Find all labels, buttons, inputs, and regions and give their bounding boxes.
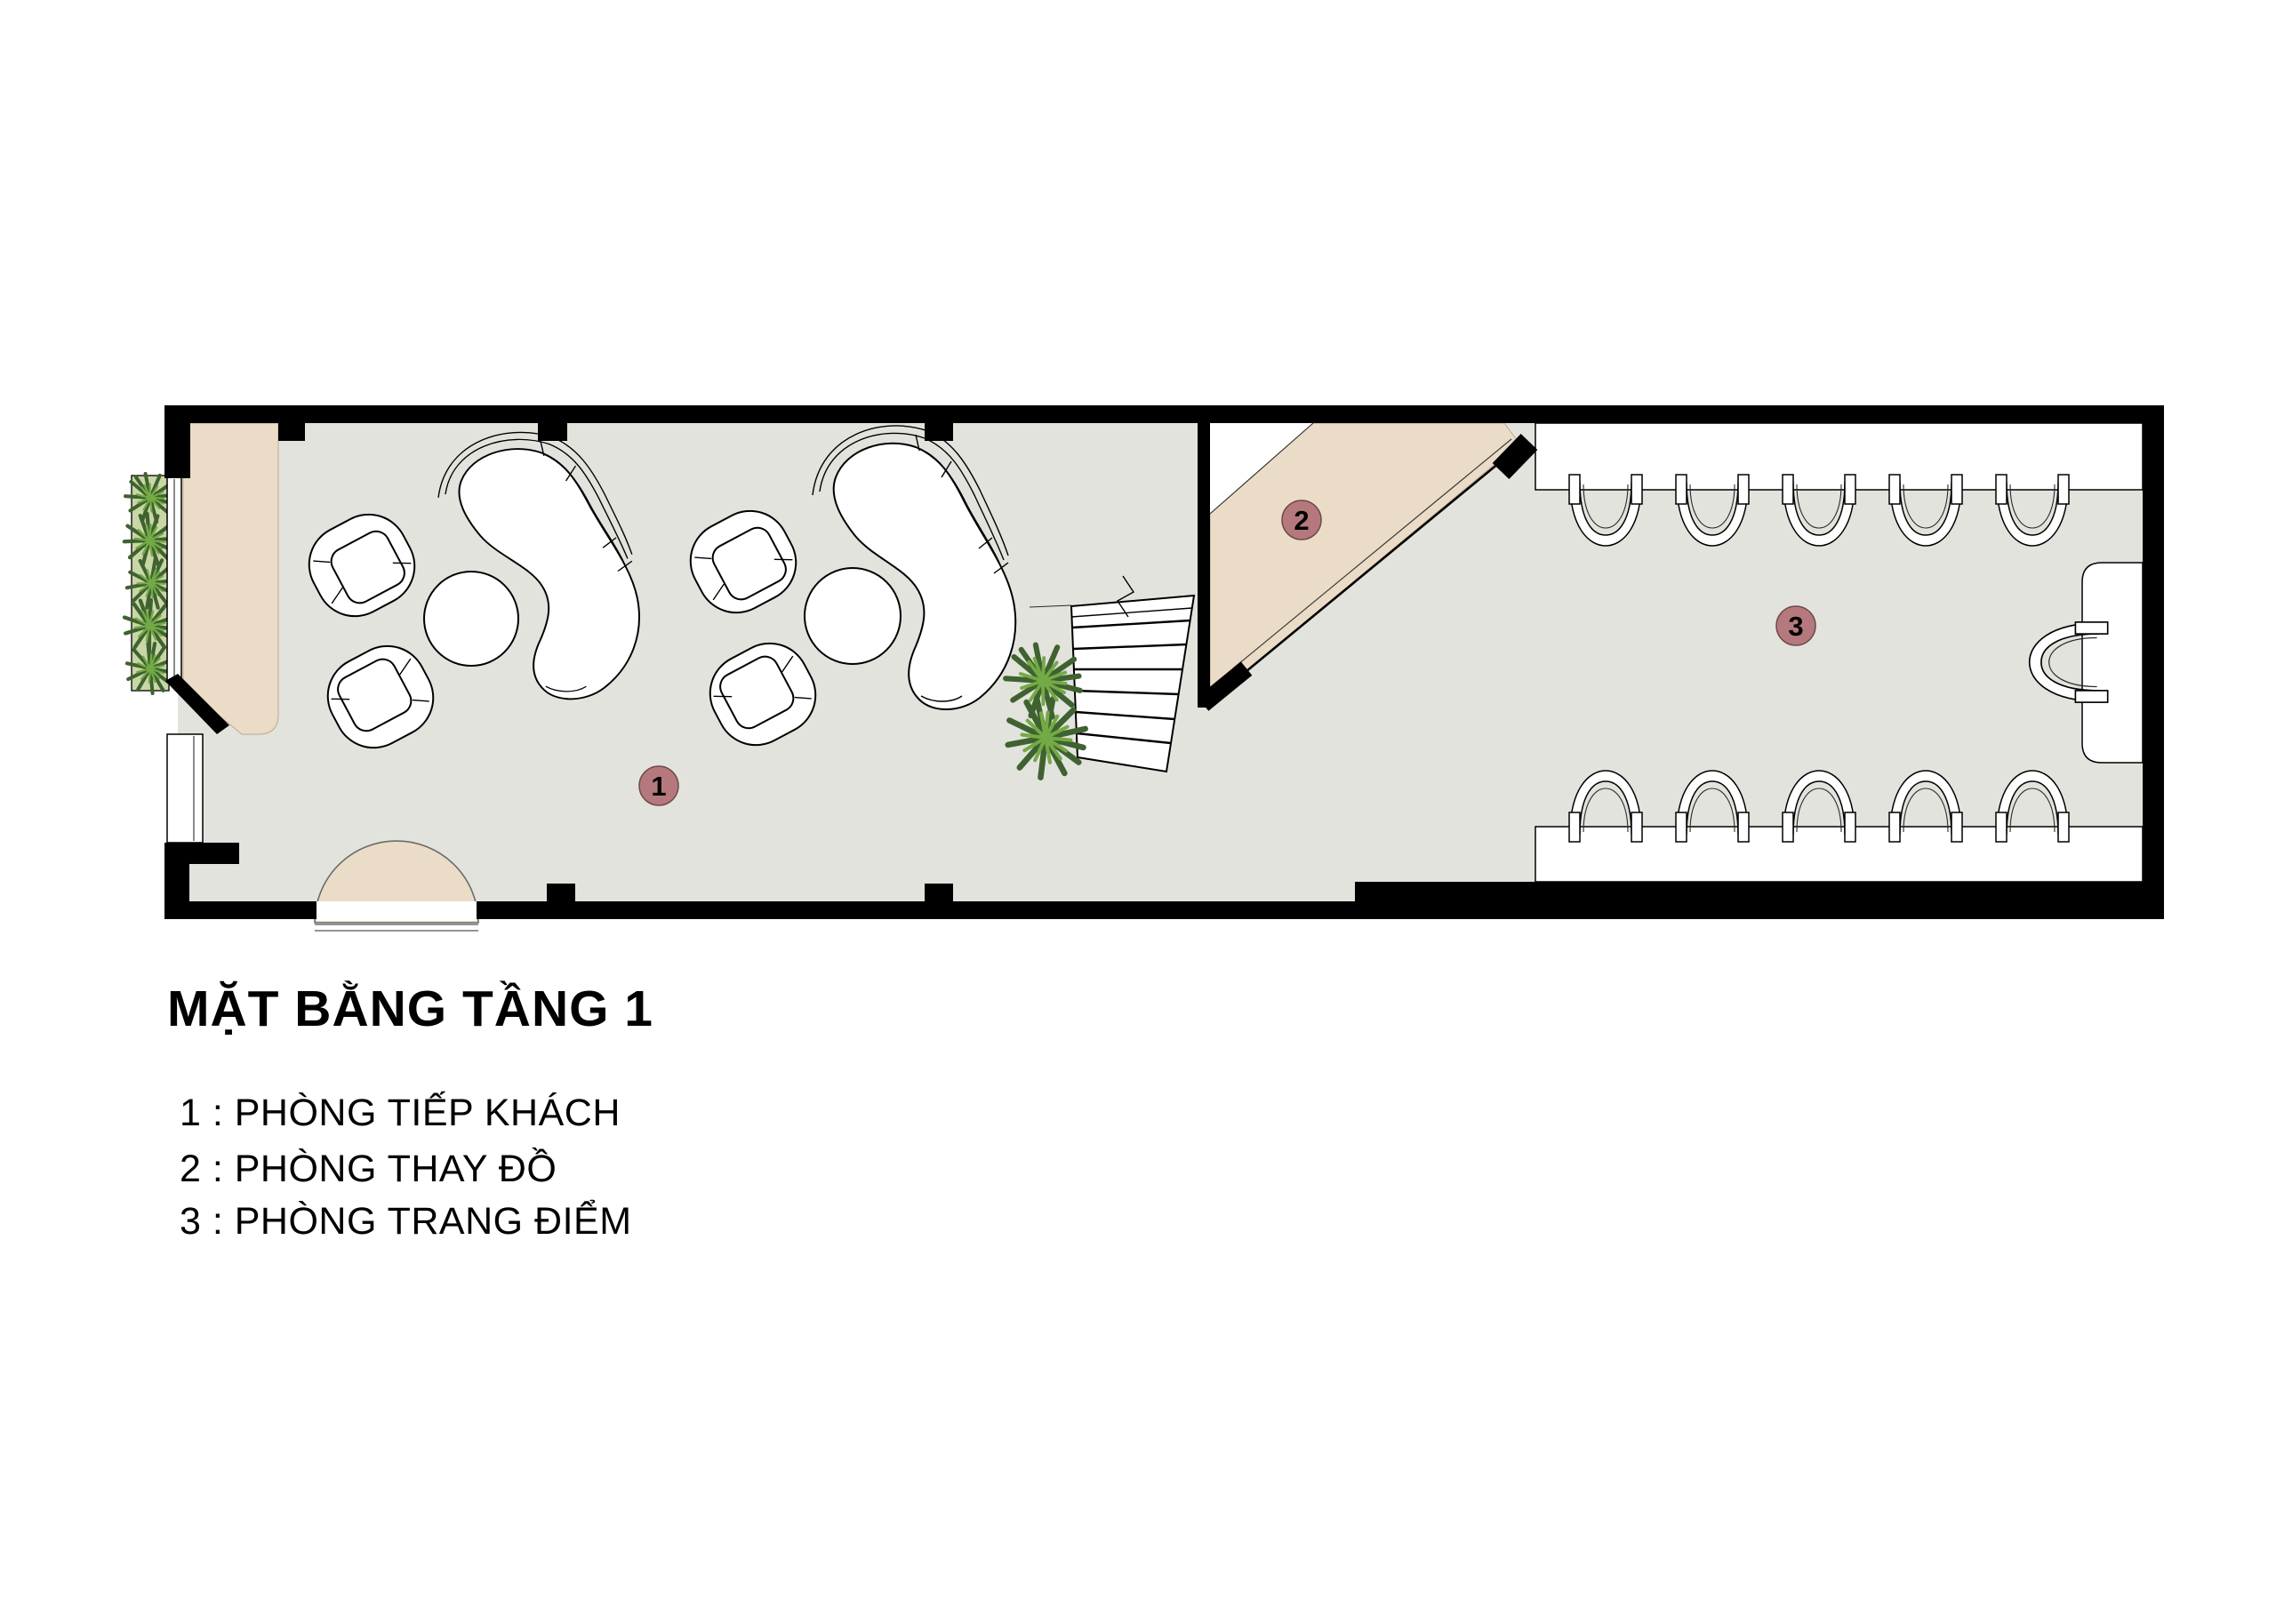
wall-pier xyxy=(547,884,575,901)
side-window xyxy=(167,734,203,843)
bottom-wall-left xyxy=(164,901,317,919)
entrance-threshold xyxy=(315,901,478,931)
room-3-number: 3 xyxy=(1788,611,1803,642)
right-wall xyxy=(2143,405,2164,919)
bottom-wall-right xyxy=(1355,882,2164,919)
legend-item-3: 3 : PHÒNG TRANG ĐIỂM xyxy=(180,1199,632,1243)
makeup-desk xyxy=(2082,563,2143,763)
bottom-wall-mid xyxy=(477,901,1369,919)
stair-hall-wall xyxy=(1198,405,1210,708)
makeup-counter-top xyxy=(1535,423,2143,490)
room-2-number: 2 xyxy=(1294,505,1309,536)
floor-plan-canvas: 1 2 3 MẶT BẰNG TẦNG 1 1 : PHÒNG TIẾP KHÁ… xyxy=(0,0,2276,1624)
legend-item-1: 1 : PHÒNG TIẾP KHÁCH xyxy=(180,1092,621,1134)
wall-pier xyxy=(925,423,953,441)
coffee-table xyxy=(424,572,518,666)
plan-title: MẶT BẰNG TẦNG 1 xyxy=(167,980,653,1037)
wall-pier xyxy=(925,884,953,901)
entry-vestibule xyxy=(183,423,278,734)
room-1-number: 1 xyxy=(651,771,666,802)
wall-pier xyxy=(538,423,567,441)
floor-plan-page: 1 2 3 MẶT BẰNG TẦNG 1 1 : PHÒNG TIẾP KHÁ… xyxy=(0,0,2276,1624)
makeup-counter-bottom xyxy=(1535,827,2143,882)
bottom-left-corner-wall-band xyxy=(164,843,239,864)
top-wall xyxy=(164,405,2164,423)
wall-pier xyxy=(278,423,305,441)
top-left-corner-wall xyxy=(164,405,190,478)
coffee-table xyxy=(805,568,901,664)
legend: 1 : PHÒNG TIẾP KHÁCH 2 : PHÒNG THAY ĐỒ 3… xyxy=(180,1092,632,1243)
bay-window xyxy=(167,477,181,682)
legend-item-2: 2 : PHÒNG THAY ĐỒ xyxy=(180,1147,557,1190)
